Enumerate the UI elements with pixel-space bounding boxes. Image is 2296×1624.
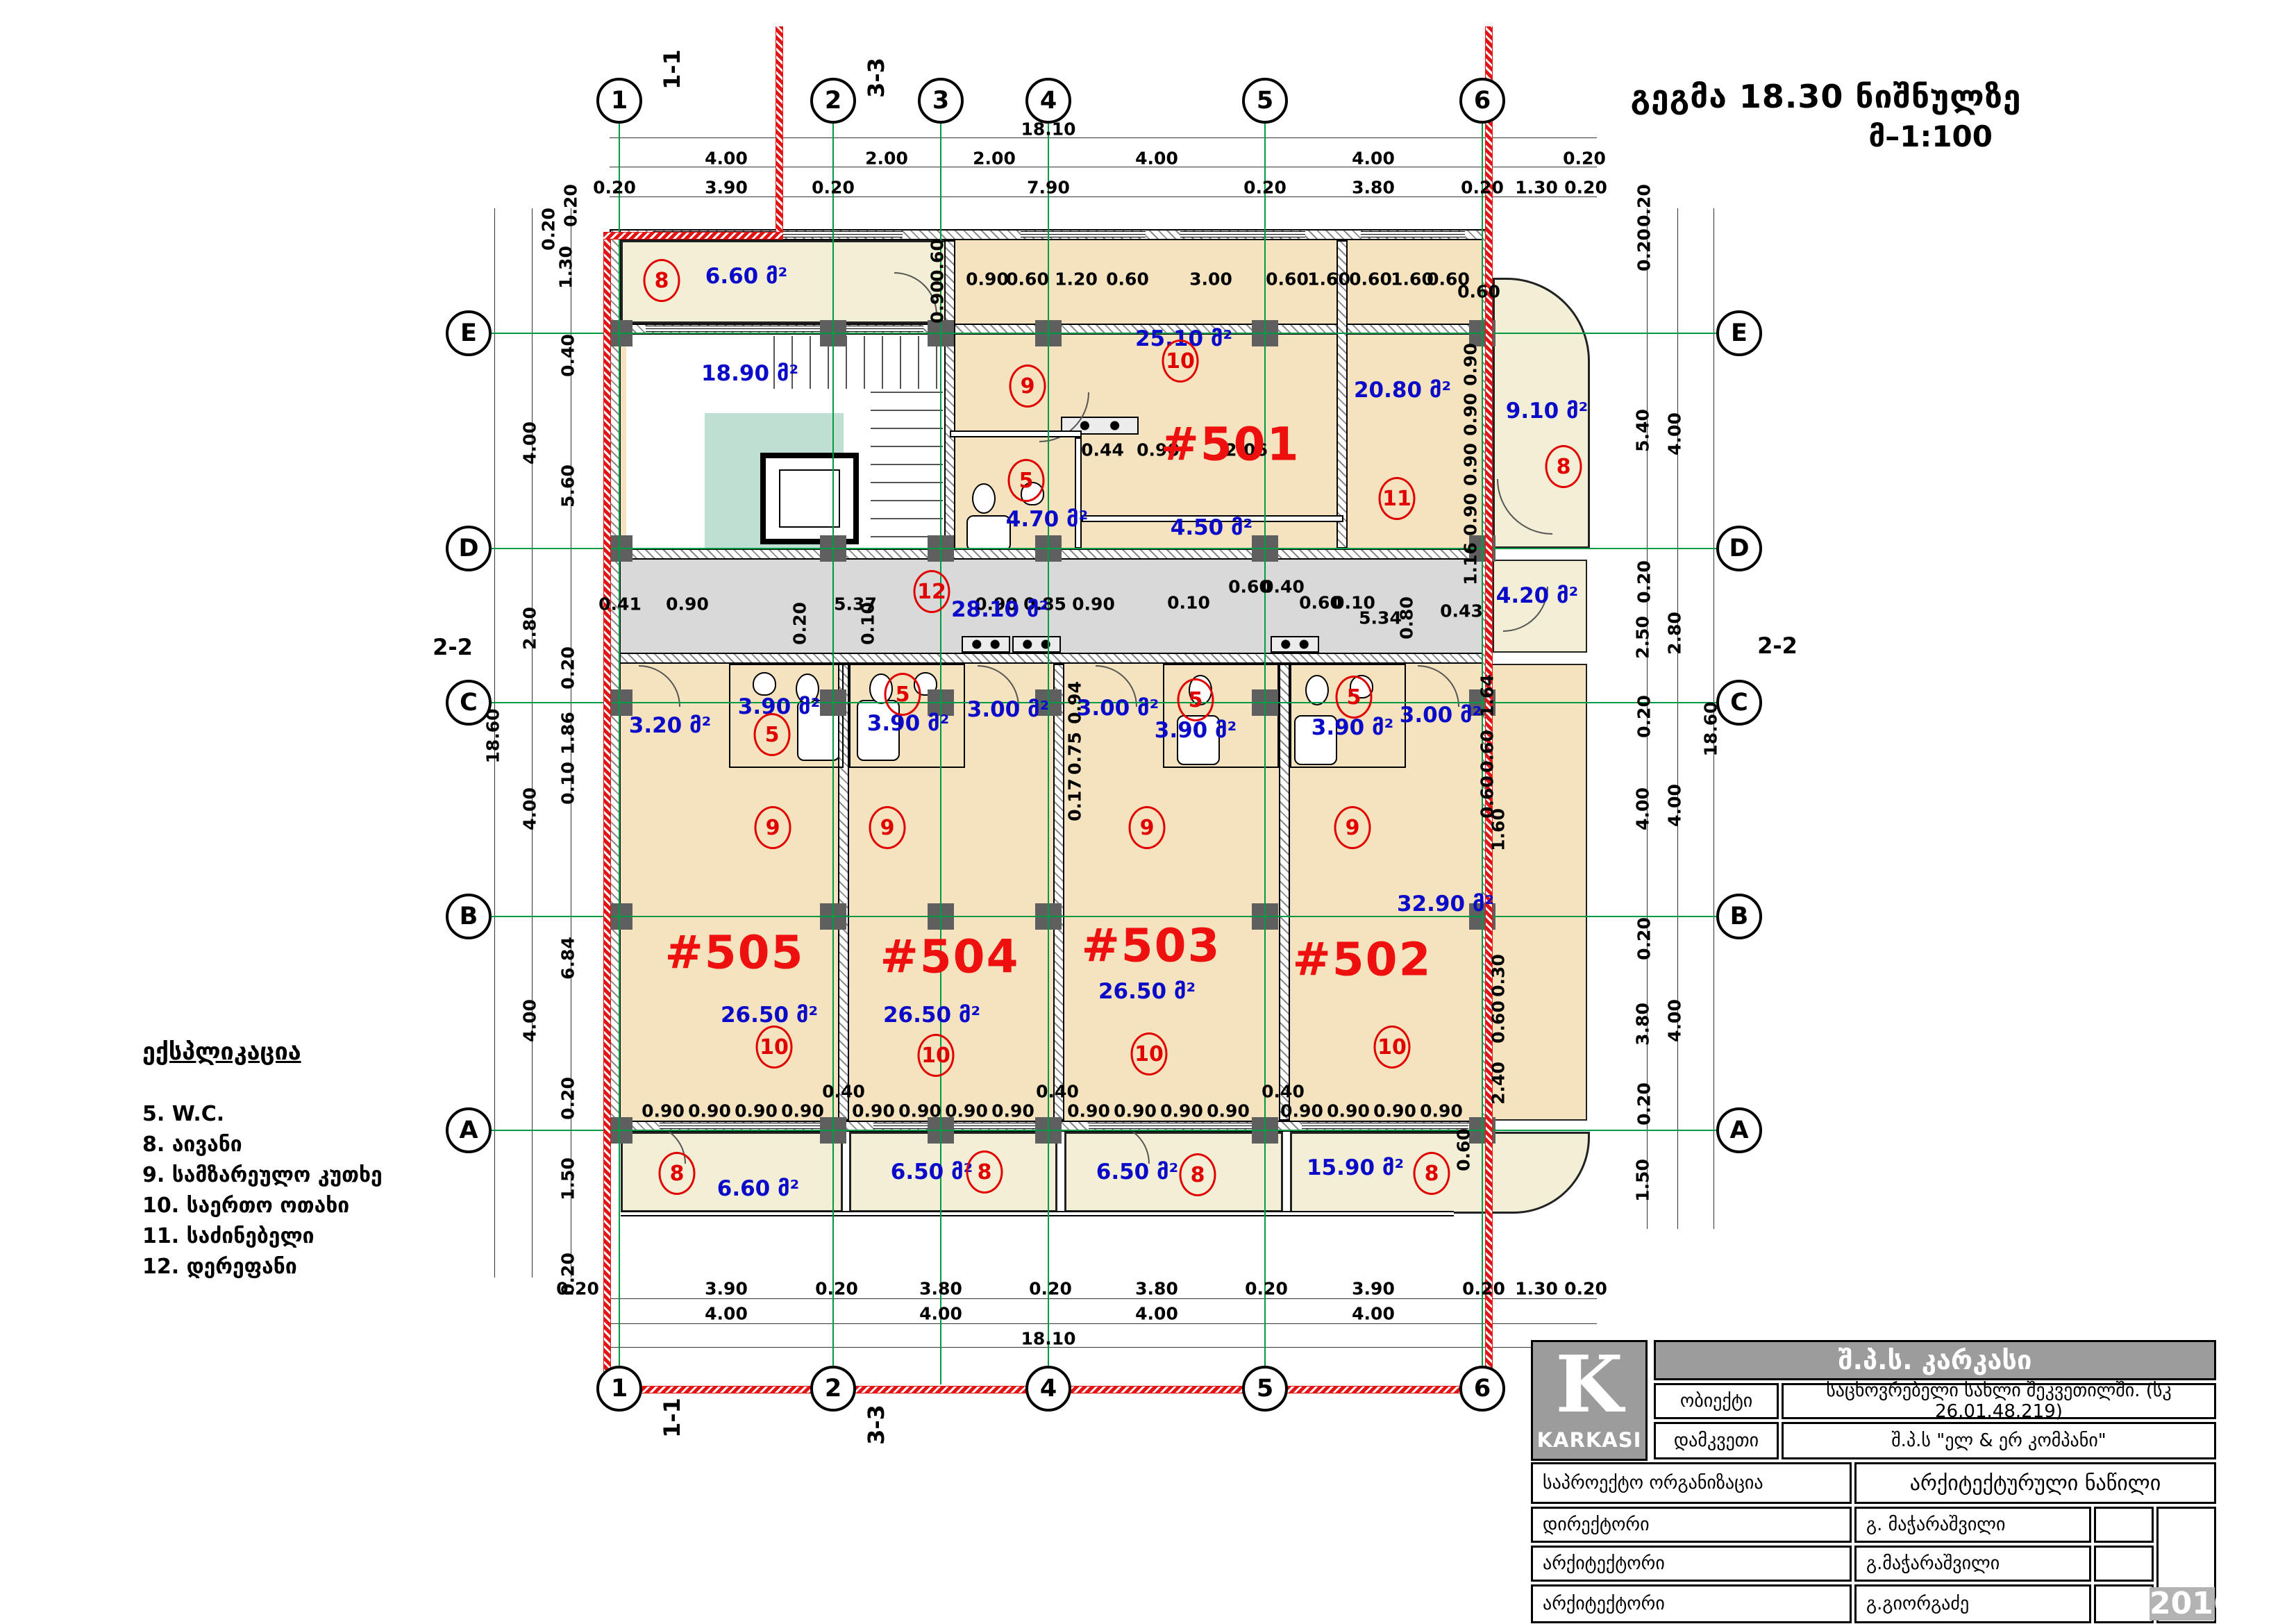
grid-bubble: D [446, 526, 492, 571]
dim-line [610, 1323, 1597, 1324]
room-number-circle: 8 [659, 1152, 696, 1195]
grid-line-vertical [1264, 119, 1266, 1384]
dim-label: 0.60 [1454, 1128, 1474, 1171]
titleblock-sign-2 [2094, 1546, 2154, 1582]
dim-label: 18.10 [1021, 1329, 1075, 1349]
dim-label: 0.20 [561, 184, 581, 227]
dim-label: 4.00 [705, 149, 748, 169]
room-number-circle: 9 [1129, 806, 1166, 849]
grid-bubble: 5 [1242, 78, 1288, 124]
dim-label: 4.00 [1665, 784, 1685, 827]
dim-label: 1.50 [558, 1157, 578, 1200]
dim-label: 0.20 [593, 178, 636, 198]
window-A-4 [1302, 1123, 1468, 1129]
room-fill-502-east [1482, 664, 1587, 1121]
room-number-circle: 12 [914, 570, 950, 613]
dim-label: 0.90 [1373, 1101, 1416, 1121]
dim-label: 0.20 [539, 208, 559, 251]
dim-label: 0.60 [1477, 730, 1498, 773]
room-number-circle: 9 [1009, 365, 1046, 408]
dim-label: 0.20 [558, 1077, 578, 1120]
dim-label: 4.00 [1352, 1304, 1395, 1324]
dim-label: 0.20 [1245, 1279, 1288, 1299]
stove-corridor-2 [1012, 636, 1061, 653]
dim-label: 0.60 [1457, 282, 1500, 302]
area-label: 3.00 მ² [967, 697, 1049, 722]
grid-bubble: 4 [1025, 78, 1071, 124]
area-label: 3.20 მ² [629, 713, 711, 738]
wall-C [610, 653, 1493, 664]
dim-label: 0.20 [812, 178, 855, 198]
dim-label: 4.00 [1135, 1304, 1178, 1324]
area-label: 26.50 მ² [883, 1003, 980, 1028]
dim-label: 0.20 [1634, 228, 1654, 271]
dim-label: 0.75 [1065, 732, 1085, 775]
grid-bubble: 1 [596, 1366, 642, 1412]
dim-label: 4.00 [1665, 999, 1685, 1042]
dim-line [1677, 208, 1678, 1229]
room-number-circle: 10 [1131, 1032, 1168, 1075]
window-A-3 [1089, 1123, 1255, 1129]
dim-label: 0.60 [1489, 1001, 1509, 1044]
dim-label: 0.40 [1262, 577, 1305, 597]
dim-label: 0.20 [815, 1279, 858, 1299]
boundary-line-left [603, 240, 611, 1392]
dim-label: 0.90 [666, 594, 709, 614]
dim-label: 0.20 [1634, 560, 1654, 603]
dim-line [532, 208, 533, 1278]
elevator-cab [779, 469, 840, 528]
room-number-circle: 5 [1008, 459, 1045, 502]
room-number-circle: 5 [1178, 678, 1214, 721]
party-wall-504-503 [1053, 664, 1064, 1121]
dim-label: 0.90 [945, 1101, 988, 1121]
area-label: 3.00 მ² [1077, 696, 1159, 721]
grid-bubble: A [446, 1107, 492, 1153]
window-top-3 [1180, 231, 1305, 237]
room-number-circle: 10 [1162, 340, 1199, 383]
dim-line [610, 1298, 1597, 1299]
area-label: 9.10 მ² [1506, 399, 1588, 424]
dim-label: 3.80 [1633, 1003, 1653, 1046]
dim-label: 3.90 [705, 1279, 748, 1299]
apartment-label: #505 [664, 926, 804, 980]
grid-bubble: B [446, 894, 492, 939]
dim-line [610, 167, 1597, 167]
titleblock-label-object: ობიექტი [1654, 1383, 1779, 1419]
dim-label: 4.00 [705, 1304, 748, 1324]
dim-label: 0.20 [1634, 1082, 1654, 1125]
dim-label: 0.20 [1564, 178, 1607, 198]
dim-label: 0.60 [1349, 269, 1392, 290]
dim-label: 3.80 [919, 1279, 962, 1299]
dim-label: 0.20 [1462, 1279, 1505, 1299]
section-mark: 1-1 [659, 1398, 685, 1438]
boundary-line-top-jog [603, 232, 783, 240]
grid-bubble: 3 [918, 78, 964, 124]
dim-label: 0.90 [688, 1101, 731, 1121]
dim-label: 1.86 [558, 712, 578, 755]
dim-line [610, 196, 1597, 197]
area-label: 4.70 მ² [1006, 507, 1088, 532]
dim-label: 3.80 [1135, 1279, 1178, 1299]
apartment-label: #502 [1292, 933, 1432, 987]
dim-label: 3.80 [1352, 178, 1395, 198]
grid-bubble: C [446, 680, 492, 726]
stove-corridor-1 [962, 636, 1010, 653]
dim-label: 2.00 [973, 149, 1016, 169]
section-mark: 1-1 [659, 49, 685, 90]
titleblock-company: შ.პ.ს. კარკასი [1654, 1340, 2216, 1380]
titleblock-label-client: დამკვეთი [1654, 1422, 1779, 1459]
dim-label: 4.00 [1665, 412, 1685, 455]
dim-label: 0.90 [1461, 393, 1481, 436]
dim-label: 5.34 [1359, 608, 1402, 628]
dim-label: 0.20 [1634, 184, 1654, 227]
legend-item: 12. დერეფანი [142, 1255, 383, 1279]
window-top-2 [1021, 231, 1146, 237]
apartment-label: #503 [1081, 919, 1221, 973]
area-label: 6.50 მ² [1096, 1160, 1178, 1184]
area-label: 32.90 მ² [1397, 891, 1494, 916]
apartment-label: #504 [880, 930, 1019, 984]
grid-bubble: 2 [810, 78, 856, 124]
dim-label: 0.40 [822, 1082, 865, 1102]
room-number-circle: 10 [918, 1034, 955, 1077]
room-number-circle: 8 [644, 259, 680, 302]
grid-bubble: 4 [1025, 1366, 1071, 1412]
area-label: 6.60 მ² [705, 264, 787, 289]
window-A-1 [660, 1123, 826, 1129]
dim-label: 1.20 [1055, 269, 1098, 290]
grid-line-vertical [619, 119, 620, 1384]
boundary-line-top-stub [776, 26, 783, 236]
dim-label: 0.10 [558, 762, 578, 805]
dim-label: 0.20 [558, 646, 578, 689]
dim-label: 7.90 [1027, 178, 1070, 198]
grid-bubble: 5 [1242, 1366, 1288, 1412]
area-label: 4.20 მ² [1496, 583, 1578, 608]
dim-label: 0.60 [1106, 269, 1149, 290]
grid-bubble: C [1716, 680, 1762, 726]
dim-label: 0.10 [1167, 593, 1210, 613]
floor-plan-sheet: გეგმა 18.30 ნიშნულზე მ–1:100 ექსპლიკაცია… [0, 0, 2296, 1624]
logo-name: KARKASI [1533, 1428, 1645, 1452]
dim-label: 0.20 [1634, 695, 1654, 738]
dim-label: 4.00 [1352, 149, 1395, 169]
dim-label: 0.60 [1006, 269, 1049, 290]
dim-label: 2.80 [520, 607, 540, 650]
grid-bubble: 6 [1459, 1366, 1505, 1412]
titleblock-value-architect1: გ.მაჭარაშვილი [1854, 1546, 2091, 1582]
dim-label: 1.30 [556, 246, 576, 289]
dim-label: 0.90 [1461, 343, 1481, 386]
dim-label: 1.60 [1307, 269, 1350, 290]
toilet-501 [972, 483, 996, 514]
dim-label: 1.30 [1515, 178, 1558, 198]
dim-label: 4.00 [520, 421, 540, 464]
dim-label: 2.40 [1489, 1062, 1509, 1105]
area-label: 20.80 მ² [1354, 378, 1451, 403]
room-number-circle: 9 [1334, 806, 1371, 849]
dim-label: 3.00 [1189, 269, 1232, 290]
dim-label: 0.20 [1243, 178, 1287, 198]
dim-label: 0.40 [1036, 1082, 1079, 1102]
grid-bubble: E [446, 310, 492, 356]
titleblock-value-org: არქიტექტურული ნაწილი [1854, 1462, 2216, 1504]
legend-item: 9. სამზარეულო კუთხე [142, 1163, 383, 1187]
dim-label: 4.00 [520, 787, 540, 830]
dim-label: 0.90 [1420, 1101, 1463, 1121]
page-title: გეგმა 18.30 ნიშნულზე მ–1:100 [1618, 78, 2034, 153]
dim-label: 0.90 [1461, 443, 1481, 486]
dim-label: 5.40 [1633, 409, 1653, 452]
section-mark: 3-3 [863, 1405, 889, 1445]
dim-line [610, 1347, 1597, 1348]
titleblock-label-org: საპროექტო ორგანიზაცია [1531, 1462, 1852, 1504]
dim-label: 0.43 [1440, 601, 1483, 621]
titleblock-value-client: შ.პ.ს "ელ & ერ კომპანი" [1782, 1422, 2216, 1459]
dim-label: 0.90 [1461, 493, 1481, 536]
stove-corridor-3 [1271, 636, 1319, 653]
dim-label: 0.20 [1029, 1279, 1072, 1299]
wc501-wall-h [950, 430, 1082, 437]
dim-label: 1.30 [1515, 1279, 1558, 1299]
titleblock-sign-1 [2094, 1507, 2154, 1543]
dim-label: 0.90 [642, 1101, 685, 1121]
dim-label: 0.20 [1564, 1279, 1607, 1299]
window-E-1 [646, 326, 923, 332]
dim-label: 0.60 [1266, 269, 1309, 290]
room-number-circle: 8 [1414, 1152, 1450, 1195]
legend-item: 5. W.C. [142, 1102, 383, 1126]
logo-letter: K [1533, 1346, 1645, 1424]
dim-label: 2.00 [865, 149, 908, 169]
dim-label: 0.90 [852, 1101, 895, 1121]
balcony-rail-bottom [621, 1211, 1454, 1216]
dim-label: 2.50 [1633, 616, 1653, 659]
dim-label: 0.40 [1262, 1082, 1305, 1102]
grid-bubble: D [1716, 526, 1762, 571]
shower-501 [966, 515, 1011, 551]
dim-label: 3.90 [1352, 1279, 1395, 1299]
grid-bubble: B [1716, 894, 1762, 939]
area-label: 3.90 მ² [1155, 718, 1237, 743]
apartment-label: #501 [1160, 418, 1300, 471]
drawing-scale: მ–1:100 [1618, 119, 2034, 153]
grid-line-horizontal [490, 1130, 1720, 1131]
dim-label: 1.16 [1461, 542, 1481, 585]
titleblock-label-director: დირექტორი [1531, 1507, 1852, 1543]
section-mark: 2-2 [433, 634, 473, 660]
area-label: 28.10 მ² [951, 597, 1048, 622]
dim-label: 0.90 [1327, 1101, 1370, 1121]
area-label: 26.50 მ² [1098, 979, 1196, 1004]
dim-line [610, 137, 1597, 138]
dim-label: 0.20 [1634, 917, 1654, 960]
dim-label: 0.20 [558, 1253, 578, 1296]
titleblock-sign-3 [2094, 1584, 2154, 1623]
dim-label: 0.90 [966, 269, 1009, 290]
dim-label: 4.00 [1135, 149, 1178, 169]
area-label: 6.60 მ² [717, 1176, 799, 1201]
drawing-title: გეგმა 18.30 ნიშნულზე [1618, 78, 2034, 115]
room-number-circle: 5 [885, 673, 921, 716]
section-mark: 2-2 [1757, 633, 1798, 659]
dim-label: 0.20 [1563, 149, 1606, 169]
room-number-circle: 8 [966, 1150, 1003, 1194]
dim-label: 2.80 [1665, 612, 1685, 655]
grid-bubble: 1 [596, 78, 642, 124]
dim-label: 0.90 [1072, 594, 1115, 614]
stair-treads-lower [871, 389, 943, 554]
dim-label: 0.41 [598, 594, 642, 614]
titleblock-value-architect2: გ.გიორგაძე [1854, 1584, 2091, 1623]
window-A-2 [873, 1123, 1040, 1129]
dim-label: 5.60 [558, 464, 578, 508]
dim-label: 0.44 [1081, 440, 1124, 460]
dim-label: 0.90 [991, 1101, 1034, 1121]
dim-label: 4.00 [919, 1304, 962, 1324]
year-badge: 2016 [2150, 1587, 2215, 1621]
dim-label: 0.60 [928, 239, 948, 282]
dim-label: 0.40 [558, 334, 578, 377]
grid-line-horizontal [490, 333, 1720, 334]
dim-label: 4.00 [520, 999, 540, 1042]
grid-line-horizontal [490, 548, 1720, 549]
legend-item: 11. საძინებელი [142, 1224, 383, 1248]
legend: ექსპლიკაცია 5. W.C.8. აივანი9. სამზარეულ… [142, 1038, 383, 1285]
titleblock-value-object: საცხოვრებელი სახლი შეკვეთილში. (სკ 26.01… [1782, 1383, 2216, 1419]
dim-label: 0.90 [735, 1101, 778, 1121]
room-number-circle: 5 [1336, 676, 1373, 719]
area-label: 15.90 მ² [1307, 1155, 1404, 1180]
area-label: 6.50 მ² [891, 1160, 973, 1184]
dim-label: 3.90 [705, 178, 748, 198]
area-label: 3.90 მ² [1312, 715, 1393, 740]
dim-label: 0.90 [928, 281, 948, 324]
dim-label: 0.90 [1280, 1101, 1323, 1121]
dim-label: 1.50 [1633, 1159, 1653, 1202]
titleblock-value-director: გ. მაჭარაშვილი [1854, 1507, 2091, 1543]
titleblock-label-architect1: არქიტექტორი [1531, 1546, 1852, 1582]
grid-line-horizontal [490, 916, 1720, 917]
wc503-box [1163, 664, 1279, 768]
dim-label: 4.00 [1633, 787, 1653, 830]
dim-label: 0.30 [1489, 954, 1509, 997]
room-number-circle: 5 [754, 713, 791, 756]
area-label: 18.90 მ² [701, 361, 798, 386]
window-top-4 [1361, 231, 1465, 237]
area-label: 4.50 მ² [1171, 515, 1252, 540]
legend-item: 8. აივანი [142, 1132, 383, 1157]
grid-bubble: 6 [1459, 78, 1505, 124]
company-logo: K KARKASI [1531, 1340, 1648, 1461]
area-label: 26.50 მ² [721, 1003, 818, 1028]
dim-label: 0.90 [1207, 1101, 1250, 1121]
dim-label: 0.80 [1397, 596, 1417, 639]
dim-label: 0.17 [1065, 778, 1085, 821]
grid-line-vertical [1048, 119, 1049, 1384]
room-number-circle: 9 [869, 806, 906, 849]
room-number-circle: 11 [1379, 477, 1416, 520]
grid-bubble: 2 [810, 1366, 856, 1412]
dim-label: 0.90 [1067, 1101, 1110, 1121]
room-number-circle: 9 [755, 806, 791, 849]
room-number-circle: 8 [1180, 1153, 1216, 1196]
party-wall-503-502 [1279, 664, 1290, 1121]
legend-item: 10. საერთო ოთახი [142, 1194, 383, 1218]
room-number-circle: 10 [1374, 1026, 1411, 1069]
dim-label: 0.90 [898, 1101, 941, 1121]
dim-label: 0.10 [858, 602, 878, 645]
dim-label: 0.90 [1160, 1101, 1203, 1121]
dim-label: 0.20 [1461, 178, 1504, 198]
dim-label: 0.20 [790, 602, 810, 645]
dim-label: 0.90 [781, 1101, 824, 1121]
dim-label: 0.90 [1114, 1101, 1157, 1121]
grid-line-vertical [832, 119, 834, 1384]
dim-label: 1.60 [1489, 808, 1509, 851]
legend-items: 5. W.C.8. აივანი9. სამზარეულო კუთხე10. ს… [142, 1102, 383, 1279]
room-number-circle: 8 [1545, 445, 1582, 488]
area-label: 3.00 მ² [1400, 703, 1482, 728]
dim-label: 6.84 [558, 937, 578, 980]
grid-bubble: E [1716, 310, 1762, 356]
section-mark: 3-3 [863, 58, 889, 98]
legend-title: ექსპლიკაცია [142, 1038, 383, 1066]
room-number-circle: 10 [756, 1026, 793, 1069]
titleblock-label-architect2: არქიტექტორი [1531, 1584, 1852, 1623]
grid-bubble: A [1716, 1107, 1762, 1153]
